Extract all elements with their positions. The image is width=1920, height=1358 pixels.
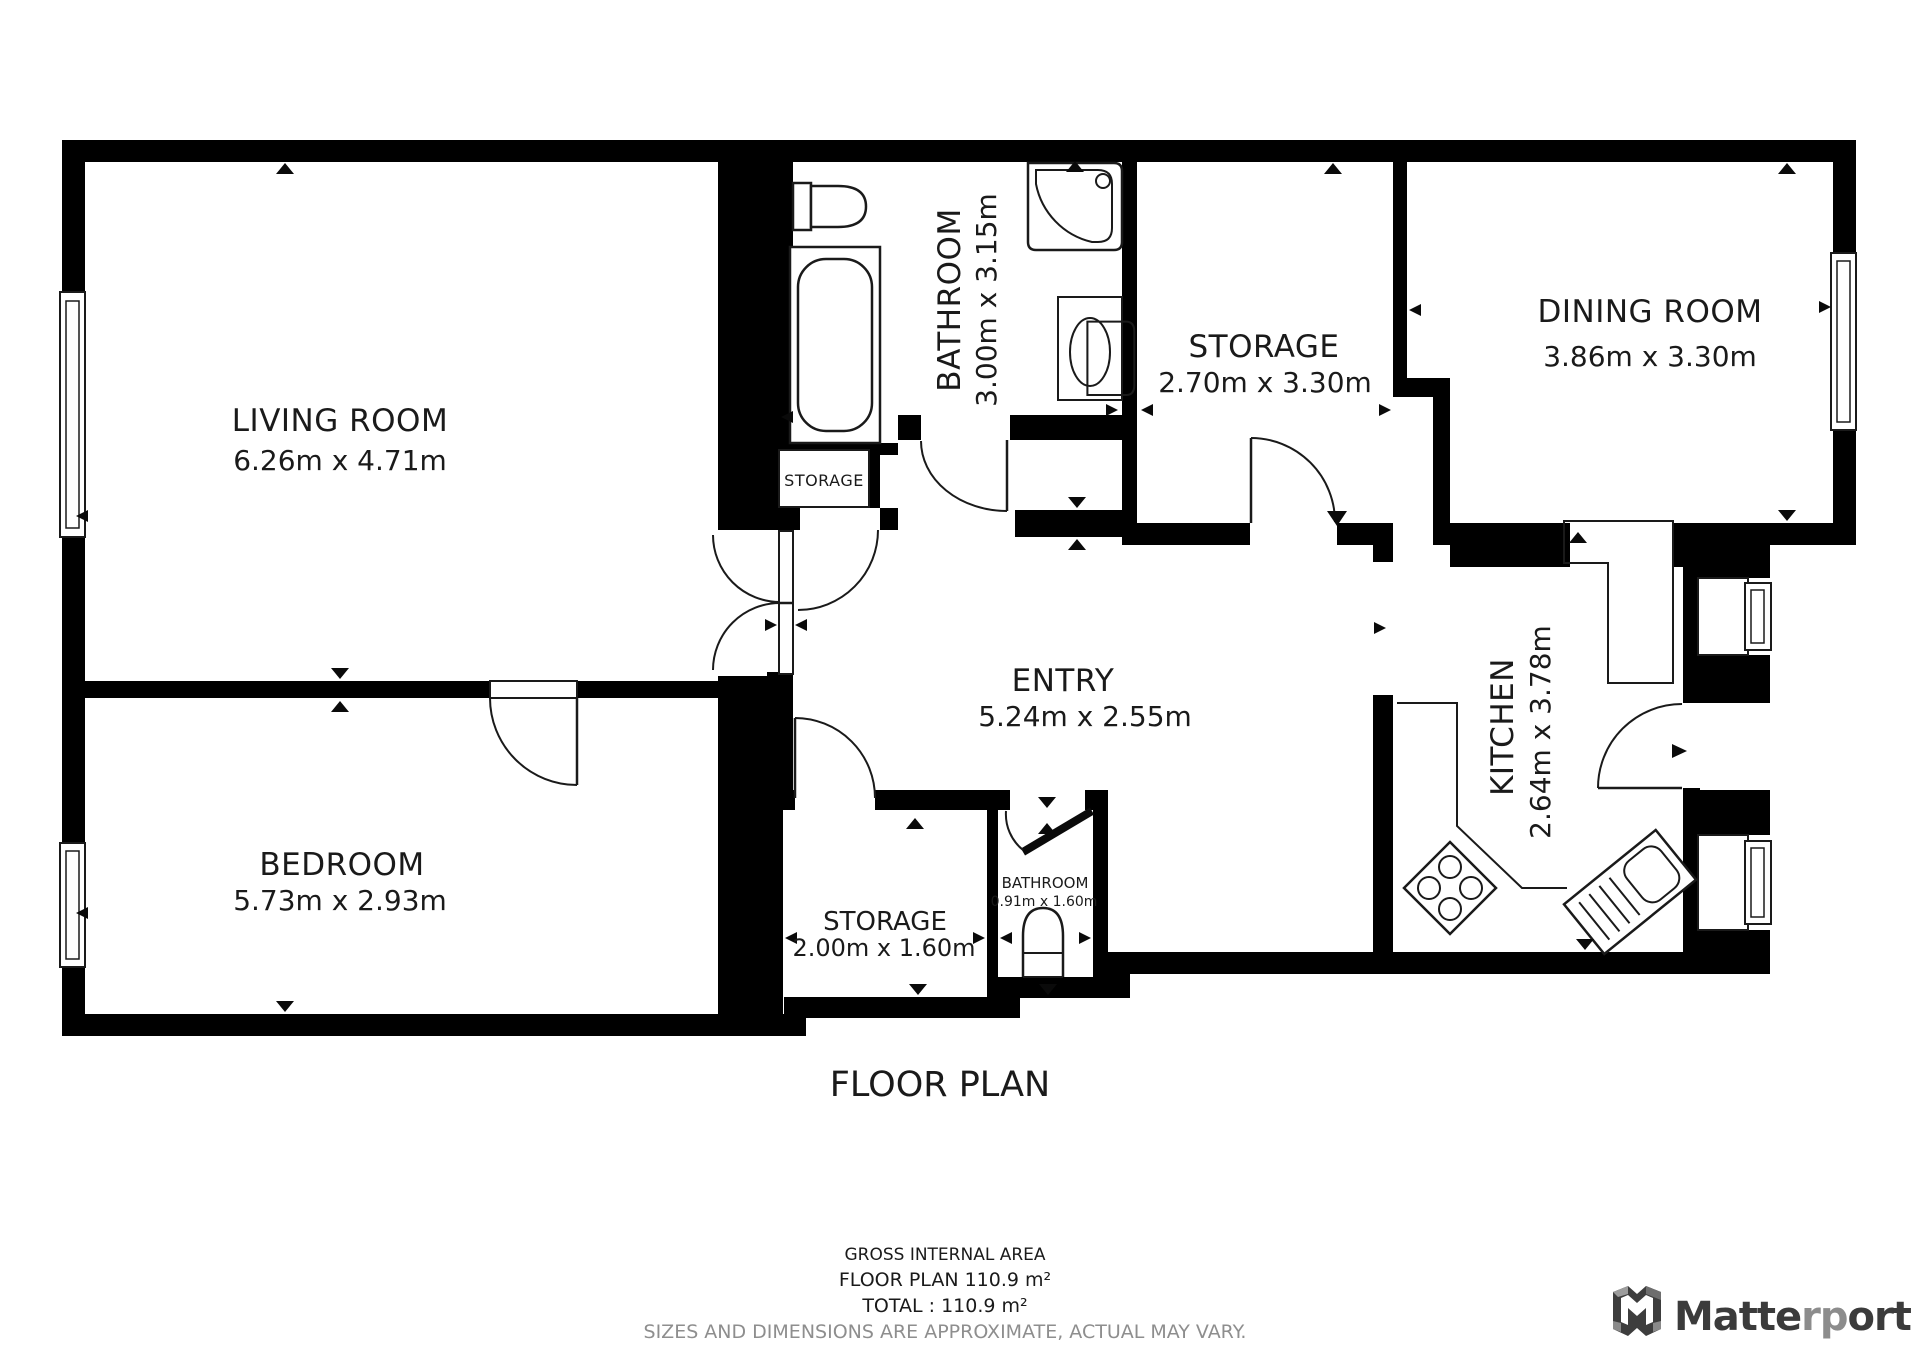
closet-label: STORAGE	[784, 471, 864, 490]
dining-room-label: DINING ROOM	[1538, 294, 1763, 330]
small-bathroom-dims: 0.91m x 1.60m	[991, 894, 1098, 910]
stove-icon	[1404, 842, 1496, 934]
living-room-window	[60, 292, 85, 537]
storage-south-dims: 2.00m x 1.60m	[792, 934, 975, 962]
total-area: TOTAL : 110.9 m²	[861, 1295, 1027, 1317]
small-shower-icon	[1023, 908, 1063, 977]
kitchen-counter-island	[1564, 521, 1673, 683]
branding: Matterport	[1613, 1286, 1912, 1340]
bathroom-door	[921, 416, 1010, 511]
corner-shower-icon	[1028, 163, 1122, 250]
floor-plan-area: FLOOR PLAN 110.9 m²	[839, 1269, 1051, 1291]
gross-internal-area-label: GROSS INTERNAL AREA	[844, 1245, 1045, 1265]
toilet-icon	[793, 183, 866, 230]
bedroom-window	[60, 843, 85, 967]
bathroom-sink-icon	[1058, 297, 1134, 400]
matterport-logo-icon	[1613, 1286, 1661, 1336]
kitchen-sink-icon	[1564, 830, 1696, 954]
living-room-double-door	[713, 531, 793, 674]
brand-part-dark2: ort	[1848, 1294, 1912, 1340]
bedroom-label: BEDROOM	[259, 847, 424, 883]
kitchen-door	[1598, 703, 1699, 788]
storage-south-door	[795, 718, 875, 809]
disclaimer-text: SIZES AND DIMENSIONS ARE APPROXIMATE, AC…	[644, 1321, 1247, 1343]
living-room-label: LIVING ROOM	[232, 403, 448, 439]
entry-label: ENTRY	[1012, 663, 1115, 699]
floor-plan-canvas: LIVING ROOM 6.26m x 4.71m BEDROOM 5.73m …	[0, 0, 1920, 1358]
bathtub-icon	[790, 247, 880, 443]
storage-hall-door	[1250, 438, 1347, 545]
bedroom-dims: 5.73m x 2.93m	[233, 884, 447, 917]
entry-dims: 5.24m x 2.55m	[978, 700, 1192, 733]
bedroom-door	[490, 681, 577, 785]
brand-part-gray: rp	[1801, 1294, 1847, 1340]
hall-nook-door	[798, 530, 878, 610]
page-title: FLOOR PLAN	[830, 1065, 1050, 1105]
storage-hall-dims: 2.70m x 3.30m	[1158, 366, 1372, 399]
footer: GROSS INTERNAL AREA FLOOR PLAN 110.9 m² …	[644, 1245, 1247, 1343]
dining-room-window	[1831, 253, 1856, 430]
matterport-wordmark: Matterport	[1674, 1294, 1912, 1340]
kitchen-bay-window-top	[1698, 578, 1771, 655]
bathroom-label: BATHROOM	[932, 208, 968, 391]
small-bathroom-label: BATHROOM	[1002, 874, 1089, 892]
kitchen-label: KITCHEN	[1485, 658, 1521, 796]
storage-hall-label: STORAGE	[1188, 329, 1339, 365]
fixtures	[779, 163, 1696, 977]
brand-part-dark: Matte	[1674, 1294, 1801, 1340]
bathroom-dims: 3.00m x 3.15m	[970, 193, 1003, 407]
living-room-dims: 6.26m x 4.71m	[233, 444, 447, 477]
storage-south-label: STORAGE	[823, 907, 947, 937]
kitchen-bay-window-bottom	[1698, 835, 1771, 930]
kitchen-dims: 2.64m x 3.78m	[1524, 625, 1557, 839]
dining-room-dims: 3.86m x 3.30m	[1543, 340, 1757, 373]
